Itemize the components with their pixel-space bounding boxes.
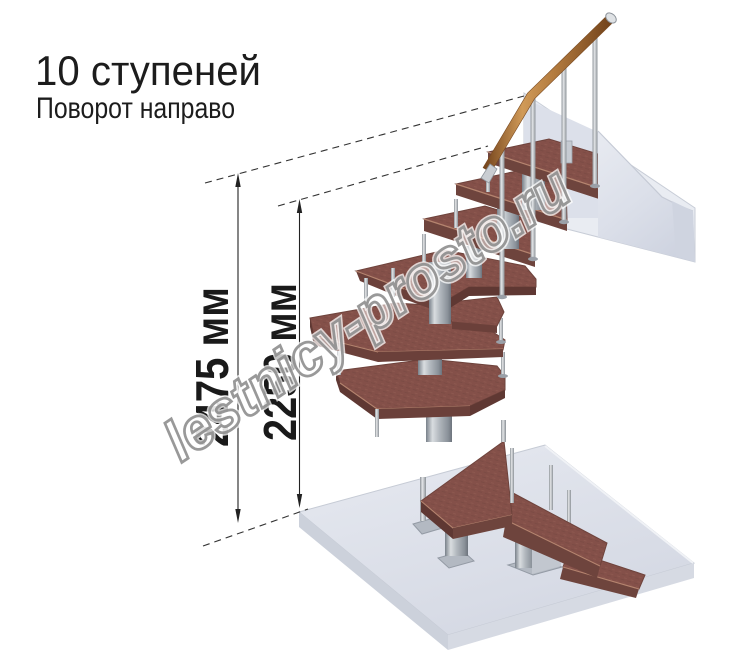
svg-text:10 ступеней: 10 ступеней [35,47,261,94]
svg-text:Поворот направо: Поворот направо [36,92,235,125]
